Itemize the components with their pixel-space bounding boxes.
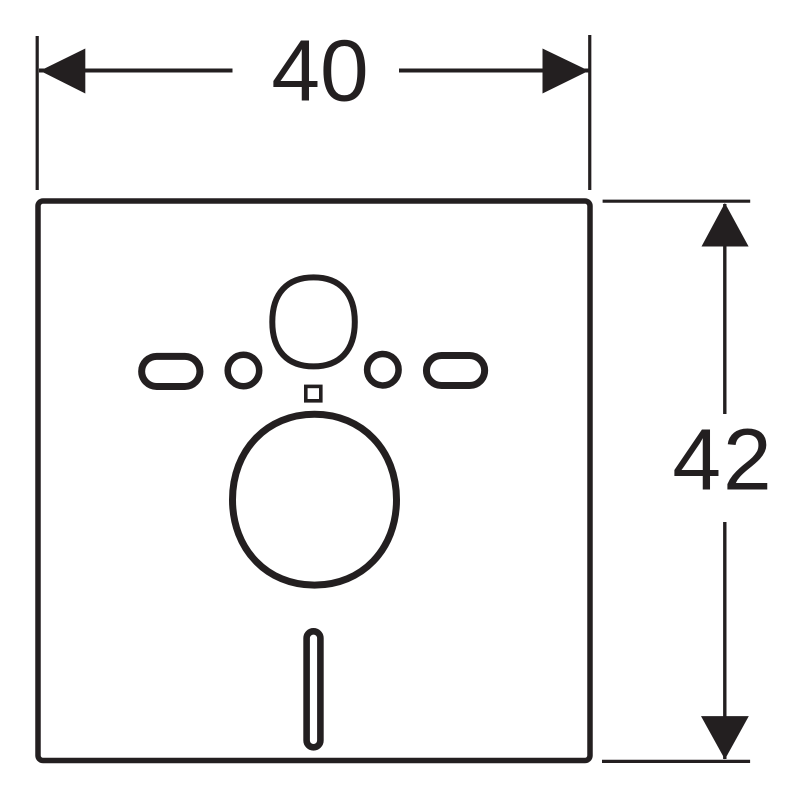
svg-text:40: 40	[271, 21, 368, 119]
svg-text:42: 42	[672, 411, 773, 509]
